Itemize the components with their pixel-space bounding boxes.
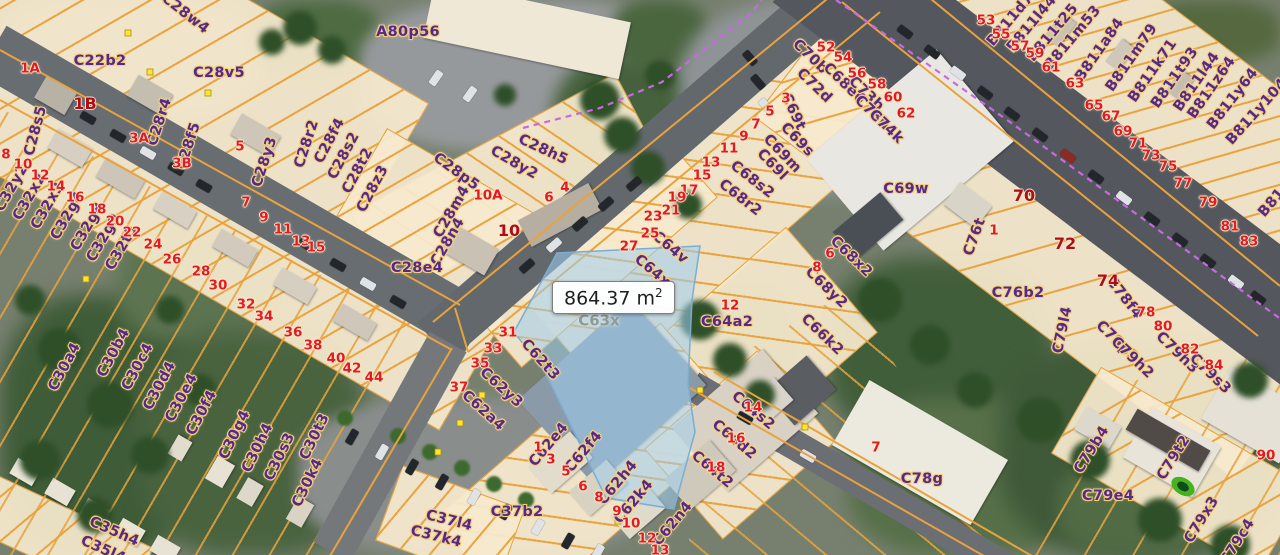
parcel-label: C64a2	[701, 315, 753, 330]
house-number-label: 22	[123, 226, 142, 240]
house-number-label: 7	[241, 196, 250, 210]
house-number-label: 11	[720, 142, 739, 156]
tree	[318, 36, 346, 64]
house-number-label: 14	[47, 180, 66, 194]
house-number-label: 7	[871, 441, 880, 455]
house-number-label: 34	[255, 310, 274, 324]
house-number-label: 7	[751, 118, 760, 132]
tree	[283, 11, 317, 45]
house-number-label: 10	[14, 158, 33, 172]
house-number-label: 38	[304, 339, 323, 353]
house-number-label: 27	[620, 240, 639, 254]
house-number-label: 28	[192, 265, 211, 279]
tree	[131, 436, 169, 474]
house-number-label: 5	[235, 140, 244, 154]
district-number-label: 70	[1013, 188, 1035, 204]
house-number-label: 8	[594, 491, 603, 505]
tree	[910, 325, 950, 365]
house-number-label: 5	[765, 105, 774, 119]
house-number-label: 9	[739, 130, 748, 144]
house-number-label: 80	[1154, 320, 1173, 334]
parcel-label: C28v5	[193, 66, 245, 81]
house-number-label: 10A	[473, 189, 502, 203]
selected-parcel-label: C63x	[578, 314, 620, 329]
house-number-label: 84	[1205, 359, 1224, 373]
house-number-label: 6	[578, 480, 587, 494]
house-number-label: 42	[343, 362, 362, 376]
house-number-label: 6	[544, 191, 553, 205]
house-number-label: 24	[144, 238, 163, 252]
house-number-label: 63	[1066, 77, 1085, 91]
house-number-label: 90	[1257, 449, 1276, 463]
house-number-label: 4	[560, 181, 569, 195]
house-number-label: 3	[781, 92, 790, 106]
house-number-label: 13	[651, 544, 670, 555]
house-number-label: 77	[1174, 177, 1193, 191]
house-number-label: 82	[1181, 343, 1200, 357]
house-number-label: 78	[1137, 306, 1156, 320]
house-number-label: 25	[641, 227, 660, 241]
house-number-label: 81	[1221, 220, 1240, 234]
tree	[259, 29, 285, 55]
parking-tree	[486, 476, 502, 492]
parcel-label: A80p56	[376, 25, 440, 40]
house-number-label: 1A	[20, 62, 40, 76]
house-number-label: 37	[450, 381, 469, 395]
parcel-label: C22b2	[74, 54, 127, 69]
house-number-label: 61	[1042, 61, 1061, 75]
house-number-label: 18	[88, 203, 107, 217]
district-number-label: 74	[1097, 273, 1119, 289]
house-number-label: 75	[1159, 160, 1178, 174]
tree	[580, 80, 620, 120]
tree	[604, 117, 640, 153]
tree	[1017, 397, 1063, 443]
parcel-label: C37b2	[491, 505, 544, 520]
parking-tree	[422, 444, 438, 460]
house-number-label: 15	[307, 241, 326, 255]
house-number-label: 32	[237, 298, 256, 312]
house-number-label: 35	[471, 357, 490, 371]
area-value: 864.37 m	[564, 287, 655, 309]
house-number-label: 12	[721, 299, 740, 313]
tree	[1138, 498, 1182, 542]
tree	[858, 278, 902, 322]
house-number-label: 67	[1102, 110, 1121, 124]
area-tooltip: 864.37 m2	[552, 281, 675, 314]
house-number-label: 3B	[172, 157, 192, 171]
house-number-label: 10	[622, 517, 641, 531]
parking-tree	[454, 460, 470, 476]
parcel-label: C69w	[883, 182, 928, 197]
house-number-label: 23	[644, 210, 663, 224]
house-number-label: 14	[744, 401, 763, 415]
house-number-label: 1	[989, 224, 998, 238]
house-number-label: 1	[533, 441, 542, 455]
house-number-label: 20	[106, 215, 125, 229]
house-number-label: 83	[1240, 235, 1259, 249]
house-number-label: 21	[662, 204, 681, 218]
map-canvas[interactable]: C28s5C22b2C28v5C28w4C28r4C28f5C28y3C28r2…	[0, 0, 1280, 555]
house-number-label: 9	[612, 505, 621, 519]
house-number-label: 8	[1, 148, 10, 162]
tree	[1232, 362, 1268, 398]
house-number-label: 26	[163, 253, 182, 267]
house-number-label: 44	[365, 371, 384, 385]
house-number-label: 31	[499, 326, 518, 340]
tree	[156, 296, 184, 324]
parcel-label: C78g	[901, 472, 943, 487]
house-number-label: 36	[284, 326, 303, 340]
house-number-label: 56	[848, 67, 867, 81]
house-number-label: 8	[812, 261, 821, 275]
tree	[15, 285, 45, 315]
house-number-label: 3	[546, 453, 555, 467]
house-number-label: 62	[897, 107, 916, 121]
district-number-label: 72	[1054, 236, 1076, 252]
house-number-label: 30	[209, 279, 228, 293]
house-number-label: 55	[992, 28, 1011, 42]
house-number-label: 15	[693, 169, 712, 183]
house-number-label: 73	[1142, 149, 1161, 163]
tree	[713, 343, 747, 377]
tree	[957, 372, 993, 408]
house-number-label: 11	[274, 223, 293, 237]
district-number-label: 1B	[73, 96, 96, 112]
tree	[645, 60, 675, 90]
house-number-label: 9	[259, 211, 268, 225]
house-number-label: 16	[66, 191, 85, 205]
house-number-label: 5	[561, 465, 570, 479]
house-number-label: 79	[1199, 196, 1218, 210]
parcel-label: C28e4	[391, 261, 443, 276]
district-number-label: 10	[498, 223, 520, 239]
parking-tree	[390, 428, 406, 444]
house-number-label: 60	[884, 91, 903, 105]
house-number-label: 16	[727, 432, 746, 446]
house-number-label: 52	[817, 41, 836, 55]
house-number-label: 6	[825, 247, 834, 261]
tree	[494, 84, 516, 106]
house-number-label: 3A	[129, 132, 149, 146]
house-number-label: 65	[1085, 99, 1104, 113]
parcel-label: C76b2	[992, 286, 1045, 301]
parking-tree	[337, 410, 353, 426]
house-number-label: 33	[484, 342, 503, 356]
house-number-label: 54	[834, 51, 853, 65]
area-unit-exponent: 2	[655, 286, 663, 300]
house-number-label: 18	[707, 461, 726, 475]
tree	[20, 440, 60, 480]
parcel-label: C79e4	[1082, 489, 1134, 504]
